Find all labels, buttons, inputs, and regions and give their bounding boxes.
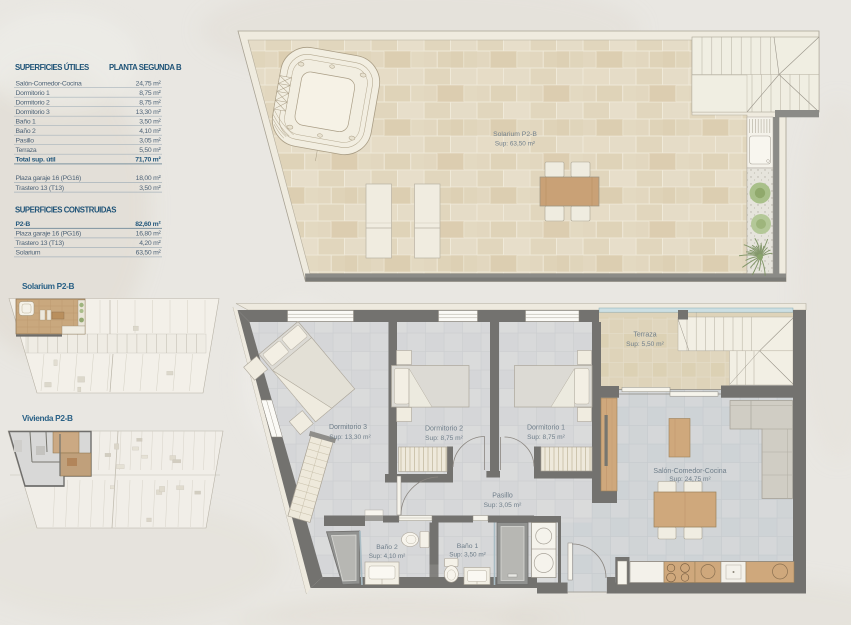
svg-text:SUPERFICIES CONSTRUIDAS: SUPERFICIES CONSTRUIDAS <box>15 206 116 215</box>
svg-text:5,50 m²: 5,50 m² <box>139 147 161 154</box>
svg-text:Solarium P2-B: Solarium P2-B <box>22 281 75 291</box>
svg-text:Dormitorio 2: Dormitorio 2 <box>16 100 50 107</box>
svg-text:Vivienda P2-B: Vivienda P2-B <box>22 413 73 423</box>
svg-text:SUPERFICIES ÚTILES: SUPERFICIES ÚTILES <box>15 63 89 72</box>
svg-text:Sup: 13,30 m²: Sup: 13,30 m² <box>329 434 371 441</box>
svg-text:18,00 m²: 18,00 m² <box>136 175 162 182</box>
svg-text:PLANTA SEGUNDA B: PLANTA SEGUNDA B <box>109 63 182 72</box>
svg-text:Plaza garaje 16 (PG16): Plaza garaje 16 (PG16) <box>16 175 82 182</box>
svg-text:3,50 m²: 3,50 m² <box>139 185 161 192</box>
svg-text:24,75 m²: 24,75 m² <box>136 81 162 88</box>
svg-text:Dormitorio 1: Dormitorio 1 <box>527 425 565 432</box>
svg-text:82,60 m²: 82,60 m² <box>135 221 161 228</box>
svg-text:4,10 m²: 4,10 m² <box>139 128 161 135</box>
svg-text:Sup: 63,50 m²: Sup: 63,50 m² <box>495 141 535 148</box>
svg-text:Terraza: Terraza <box>16 147 37 154</box>
svg-text:63,50 m²: 63,50 m² <box>136 250 162 257</box>
svg-text:Sup: 3,05 m²: Sup: 3,05 m² <box>484 502 523 509</box>
svg-text:Terraza: Terraza <box>633 332 656 339</box>
svg-text:13,30 m²: 13,30 m² <box>136 109 162 116</box>
svg-text:Baño 1: Baño 1 <box>457 543 479 550</box>
svg-text:Salón-Comedor-Cocina: Salón-Comedor-Cocina <box>653 468 726 475</box>
svg-text:8,75 m²: 8,75 m² <box>139 90 161 97</box>
svg-text:71,70 m²: 71,70 m² <box>135 157 161 164</box>
svg-text:Baño 2: Baño 2 <box>16 128 37 135</box>
svg-text:3,05 m²: 3,05 m² <box>139 138 161 145</box>
svg-text:Trastero 13 (T13): Trastero 13 (T13) <box>16 185 64 192</box>
svg-text:8,75 m²: 8,75 m² <box>139 100 161 107</box>
svg-text:Sup: 5,50 m²: Sup: 5,50 m² <box>626 341 665 348</box>
svg-text:Baño 2: Baño 2 <box>376 544 398 551</box>
svg-text:3,50 m²: 3,50 m² <box>139 119 161 126</box>
svg-text:Pasillo: Pasillo <box>16 138 35 145</box>
svg-text:Dormitorio 2: Dormitorio 2 <box>425 426 463 433</box>
svg-text:Sup: 8,75 m²: Sup: 8,75 m² <box>527 434 566 441</box>
svg-text:Solarium: Solarium <box>16 250 41 257</box>
svg-text:Trastero 13 (T13): Trastero 13 (T13) <box>16 240 64 247</box>
svg-text:Sup: 24,75 m²: Sup: 24,75 m² <box>669 476 711 483</box>
svg-text:P2-B: P2-B <box>16 221 31 228</box>
svg-text:Dormitorio 3: Dormitorio 3 <box>329 424 367 431</box>
svg-text:Solarium P2-B: Solarium P2-B <box>493 131 537 138</box>
svg-text:Salón-Comedor-Cocina: Salón-Comedor-Cocina <box>16 81 82 88</box>
svg-text:Dormitorio 3: Dormitorio 3 <box>16 109 50 116</box>
svg-text:Plaza garaje 16 (PG16): Plaza garaje 16 (PG16) <box>16 231 82 238</box>
svg-text:Pasillo: Pasillo <box>492 493 513 500</box>
svg-text:Baño 1: Baño 1 <box>16 119 37 126</box>
svg-text:Sup: 4,10 m²: Sup: 4,10 m² <box>369 553 406 560</box>
svg-text:Dormitorio 1: Dormitorio 1 <box>16 90 50 97</box>
svg-text:4,20 m²: 4,20 m² <box>139 240 161 247</box>
svg-text:Sup: 8,75 m²: Sup: 8,75 m² <box>425 435 464 442</box>
svg-text:Sup: 3,50 m²: Sup: 3,50 m² <box>449 552 486 559</box>
svg-text:Total sup. útil: Total sup. útil <box>16 157 56 164</box>
svg-text:16,80 m²: 16,80 m² <box>136 231 162 238</box>
